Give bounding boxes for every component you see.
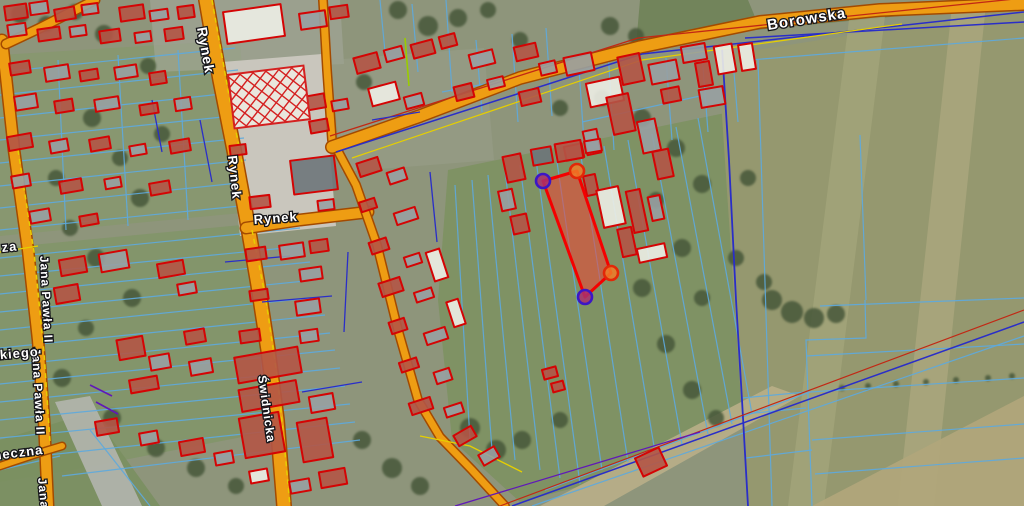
building-outline: [95, 418, 119, 436]
building-outline: [49, 139, 69, 154]
building-outline: [14, 93, 38, 110]
building-outline: [79, 69, 98, 82]
building-outline: [309, 239, 328, 253]
building-outline: [617, 53, 644, 85]
building-outline: [44, 64, 70, 82]
building-outline: [184, 328, 206, 344]
building-outline: [59, 256, 87, 276]
street-label: za: [1, 238, 18, 255]
building-outline: [94, 96, 120, 112]
tree: [781, 301, 803, 323]
building-outline: [149, 71, 167, 85]
building-outline: [239, 329, 260, 344]
building-outline: [9, 61, 31, 76]
building-outline: [177, 282, 197, 296]
building-outline: [29, 208, 51, 223]
tree: [228, 478, 244, 494]
tree: [140, 58, 156, 74]
tree: [804, 308, 824, 328]
street-label: Rynek: [253, 209, 298, 227]
building-outline: [661, 86, 681, 103]
building-outline: [139, 103, 158, 116]
tree: [513, 431, 531, 449]
building-outline: [299, 329, 318, 343]
tree: [154, 126, 170, 142]
map-viewport: BorowskaRynekRynekRynekŚwidnickaJana Paw…: [0, 0, 1024, 506]
building-outline: [189, 358, 213, 376]
building-outline: [7, 23, 26, 37]
building-outline: [551, 381, 565, 393]
tree: [187, 459, 205, 477]
building-outline: [119, 4, 145, 21]
building-outline: [699, 86, 726, 108]
tree: [633, 279, 651, 297]
tree: [389, 1, 407, 19]
building-outline: [129, 144, 146, 157]
tree: [657, 335, 675, 353]
tree: [827, 305, 845, 323]
building-outline: [317, 199, 334, 211]
building-outline: [134, 31, 151, 43]
building-outline: [4, 4, 28, 21]
building-outline: [279, 242, 305, 259]
building-outline: [177, 5, 195, 19]
building-outline: [584, 139, 602, 154]
building-outline: [54, 284, 80, 304]
tree: [480, 2, 496, 18]
building-outline: [164, 27, 183, 41]
building-outline: [245, 247, 266, 262]
parcel-vertex-marker[interactable]: [536, 174, 550, 188]
building-outline: [149, 180, 171, 195]
building-outline: [29, 1, 48, 15]
building-outline: [79, 214, 98, 227]
tree: [78, 320, 94, 336]
tree: [418, 16, 438, 36]
building-outline: [249, 469, 269, 484]
building-outline: [299, 10, 327, 29]
building-outline: [114, 64, 138, 79]
street-label: Jana: [35, 477, 52, 506]
building-outline: [11, 174, 31, 189]
building-outline: [37, 27, 60, 42]
tree: [131, 189, 149, 207]
building-outline: [519, 88, 542, 106]
tree: [740, 170, 756, 186]
building-outline: [54, 6, 76, 21]
tree: [382, 458, 402, 478]
building-outline: [539, 60, 557, 75]
building-outline: [542, 366, 558, 379]
building-outline: [695, 61, 713, 87]
map-canvas[interactable]: BorowskaRynekRynekRynekŚwidnickaJana Paw…: [0, 0, 1024, 506]
building-outline: [297, 418, 333, 463]
building-outline: [104, 177, 121, 190]
tree: [601, 17, 619, 35]
building-outline: [69, 25, 86, 37]
tree: [552, 100, 568, 116]
tree: [552, 412, 568, 428]
building-outline: [510, 214, 529, 235]
tree: [112, 150, 128, 166]
building-outline: [249, 289, 268, 301]
building-outline: [223, 4, 285, 44]
building-outline: [214, 451, 234, 466]
building-outline: [319, 468, 347, 488]
building-outline: [309, 393, 335, 413]
building-outline: [179, 438, 205, 456]
building-outline: [454, 83, 475, 101]
building-outline: [329, 5, 348, 19]
tree: [728, 250, 744, 266]
building-outline: [149, 9, 168, 21]
building-outline: [54, 99, 74, 114]
building-outline: [81, 3, 98, 15]
building-outline: [7, 133, 33, 151]
building-outline: [295, 298, 321, 315]
building-outline: [714, 44, 737, 75]
building-outline: [648, 60, 679, 85]
building-outline: [249, 195, 270, 209]
building-outline: [139, 431, 159, 446]
building-outline: [116, 336, 145, 360]
building-outline: [299, 267, 322, 282]
building-outline: [498, 189, 516, 211]
building-outline: [169, 138, 191, 153]
building-outline: [59, 178, 83, 194]
tree: [449, 9, 467, 27]
parcel-vertex-marker[interactable]: [578, 290, 592, 304]
building-outline: [555, 140, 584, 162]
building-outline: [149, 353, 171, 370]
tree: [756, 274, 772, 290]
tree: [411, 477, 429, 495]
building-outline: [531, 146, 553, 165]
building-outline: [290, 155, 338, 194]
building-outline: [289, 478, 311, 493]
building-outline: [89, 136, 111, 151]
building-outline: [99, 29, 120, 44]
building-outline: [681, 43, 707, 63]
building-outline: [174, 97, 192, 111]
parcel-vertex-marker[interactable]: [570, 164, 584, 178]
parcel-vertex-marker[interactable]: [604, 266, 618, 280]
building-outline: [99, 250, 130, 273]
building-outline: [309, 119, 329, 134]
building-outline: [331, 99, 348, 112]
tree: [673, 239, 691, 257]
building-outline: [738, 43, 756, 71]
